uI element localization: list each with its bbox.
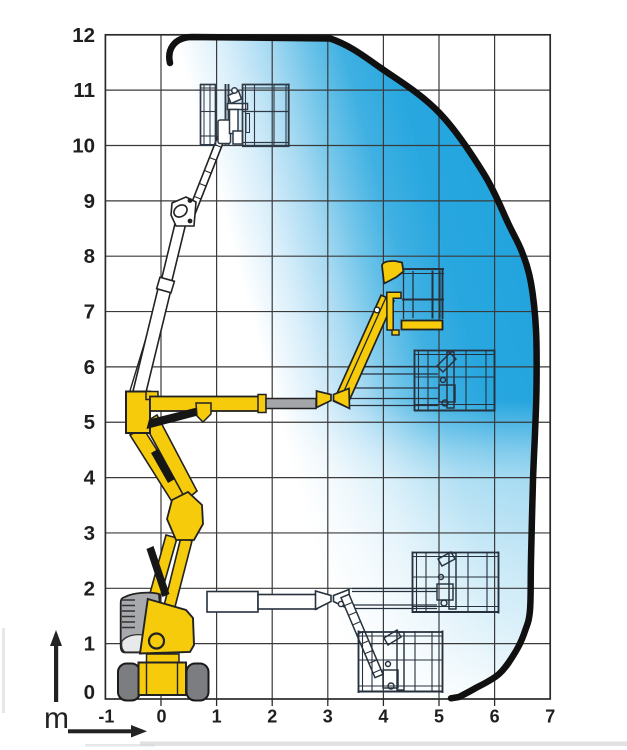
svg-text:9: 9 [84,190,95,213]
svg-text:0: 0 [156,707,166,727]
svg-text:3: 3 [323,707,333,727]
svg-text:4: 4 [378,707,388,727]
svg-text:5: 5 [84,411,95,434]
svg-text:8: 8 [84,245,95,268]
svg-text:0: 0 [84,681,95,704]
svg-text:1: 1 [212,707,222,727]
svg-text:6: 6 [490,707,500,727]
svg-text:7: 7 [84,301,95,324]
svg-text:7: 7 [545,707,555,727]
svg-text:3: 3 [84,522,95,545]
svg-text:1: 1 [84,633,95,656]
svg-text:2: 2 [267,707,277,727]
svg-text:2: 2 [84,577,95,600]
svg-text:10: 10 [72,135,95,158]
svg-text:11: 11 [73,79,95,102]
svg-text:6: 6 [84,356,95,379]
svg-text:-1: -1 [98,707,114,727]
svg-text:4: 4 [84,467,96,490]
svg-text:5: 5 [434,707,444,727]
svg-text:m: m [44,702,69,735]
svg-text:12: 12 [72,24,95,47]
